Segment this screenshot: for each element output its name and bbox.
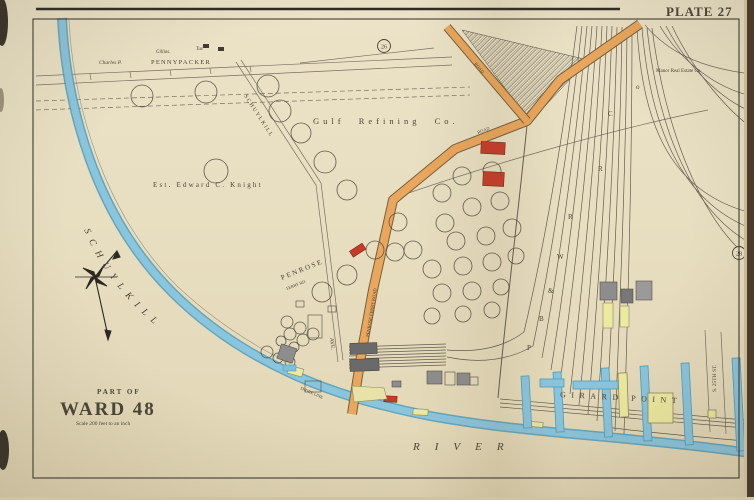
- atlas-page: Gulf Refining Co. Est. Edward C. Knight …: [0, 0, 754, 500]
- atlas-map: Gulf Refining Co. Est. Edward C. Knight …: [0, 0, 754, 500]
- page-edges: [0, 0, 754, 500]
